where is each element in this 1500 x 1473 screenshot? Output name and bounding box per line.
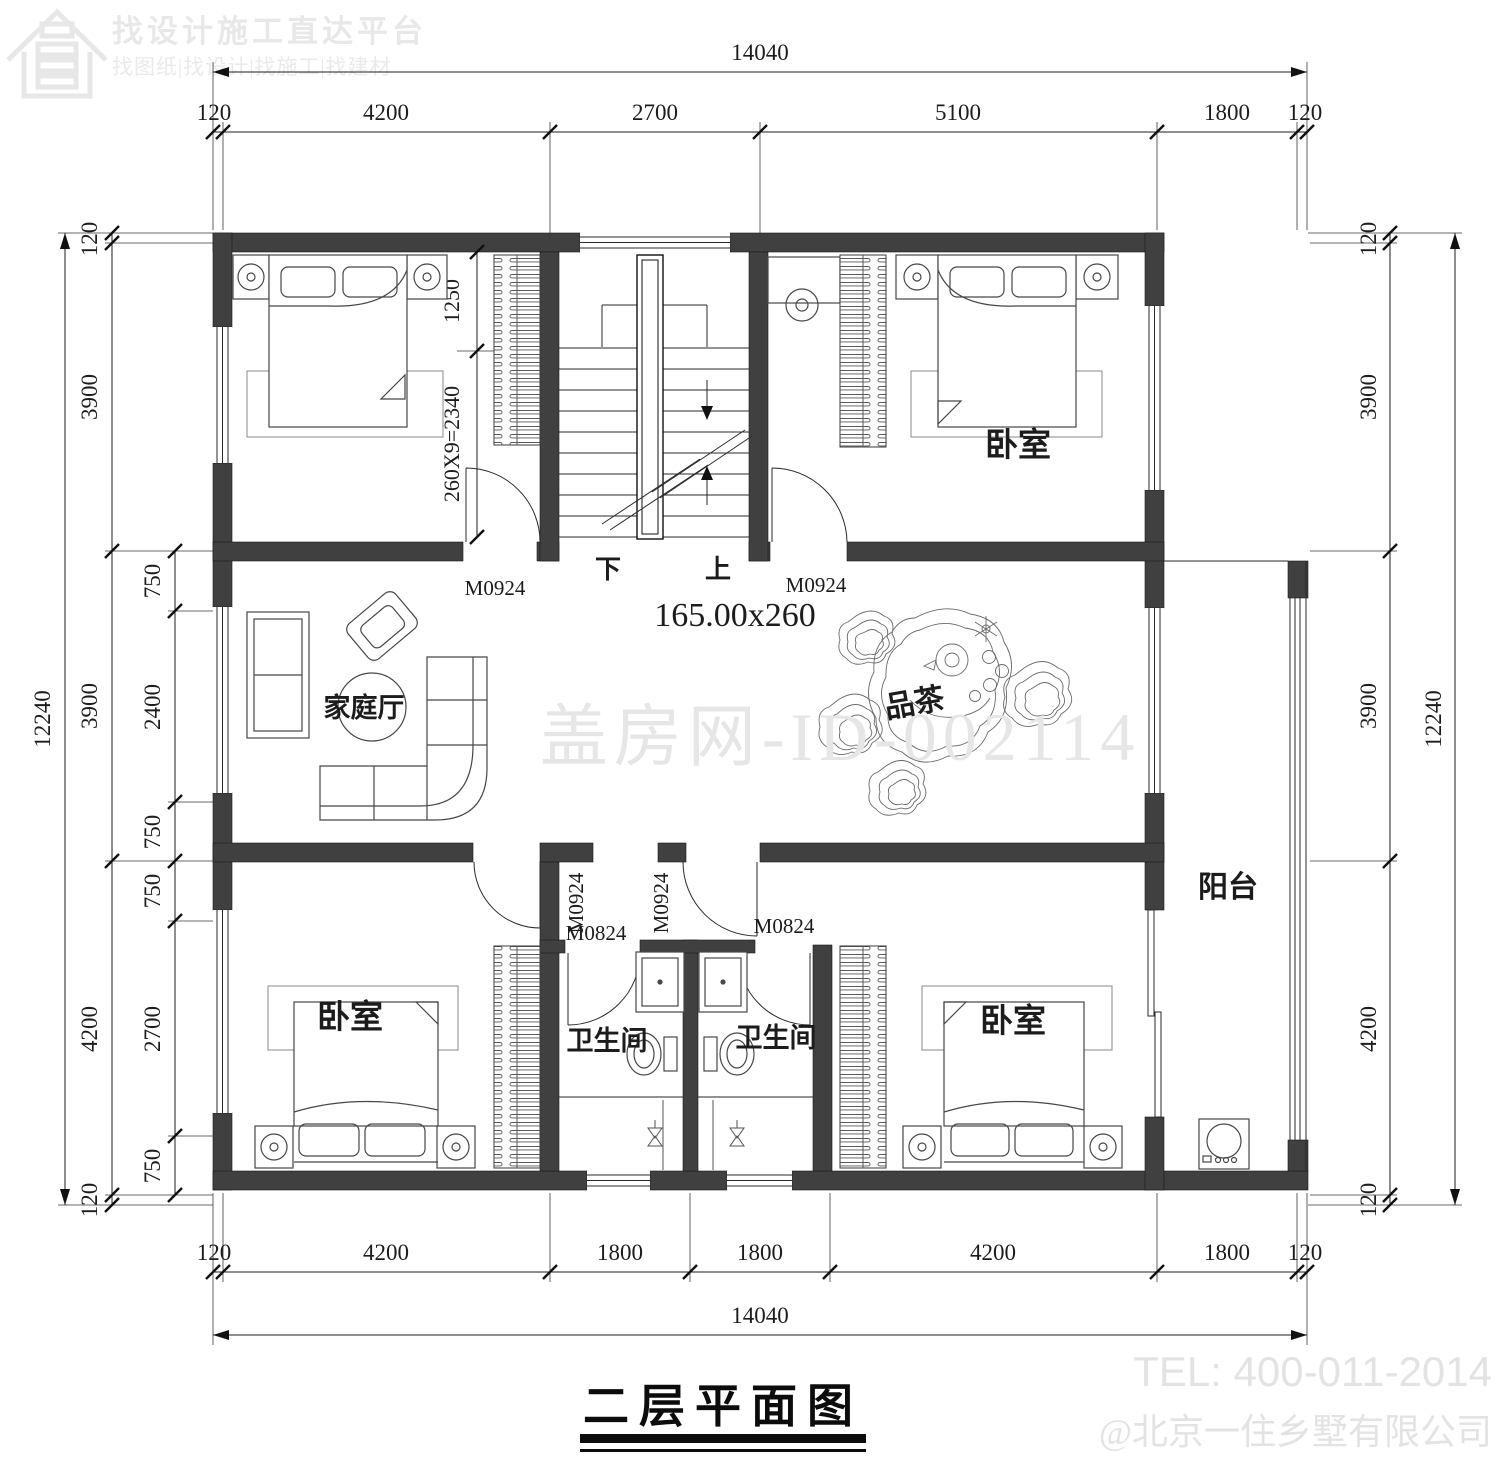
logo-title: 找设计施工直达平台: [112, 14, 427, 49]
dim-right-main-4: 120: [1356, 1183, 1381, 1218]
dim-left-inner-5: 750: [140, 1149, 165, 1184]
door-label-m0824-a: M0824: [566, 921, 627, 945]
door-label-m0924-d: M0924: [649, 872, 673, 933]
dim-bottom-total: 14040: [731, 1303, 789, 1328]
dim-top-2: 2700: [632, 100, 678, 125]
door-label-m0924-a: M0924: [465, 576, 526, 600]
dim-bottom-1: 4200: [363, 1240, 409, 1265]
floor-plan-page: 找设计施工直达平台 找图纸|找设计|找施工|找建材: [0, 0, 1500, 1473]
page-title: 二层平面图: [583, 1381, 863, 1432]
site-logo: 找设计施工直达平台 找图纸|找设计|找施工|找建材: [8, 12, 427, 96]
staircase: 下 上 1250 260X9=2340: [439, 245, 752, 584]
dim-left-main-1: 3900: [77, 374, 102, 420]
dim-bottom-6: 120: [1288, 1240, 1323, 1265]
bedroom-top-left-furniture: [233, 255, 540, 445]
bedroom-bottom-left-furniture: [255, 946, 540, 1168]
room-label-bedroom-top-right: 卧室: [985, 426, 1051, 464]
room-label-bedroom-bottom-right: 卧室: [980, 1002, 1046, 1040]
footer-company: @北京一住乡墅有限公司: [1099, 1412, 1492, 1452]
logo-subtitle: 找图纸|找设计|找施工|找建材: [112, 55, 392, 79]
dim-top-total: 14040: [731, 40, 789, 65]
tea-stool-1: [839, 611, 895, 664]
dim-left-inner-4: 2700: [140, 1006, 165, 1052]
room-label-bath-left: 卫生间: [567, 1026, 648, 1056]
dim-bottom-2: 1800: [597, 1240, 643, 1265]
dim-right-main-3: 4200: [1356, 1006, 1381, 1052]
dim-left-total: 12240: [30, 690, 55, 748]
floor-plan-canvas: 找设计施工直达平台 找图纸|找设计|找施工|找建材: [0, 0, 1500, 1473]
dim-left-main-3: 4200: [77, 1006, 102, 1052]
dim-right-main-0: 120: [1356, 222, 1381, 257]
door-label-m0924-b: M0924: [786, 573, 847, 597]
dim-right-main-2: 3900: [1356, 683, 1381, 729]
dim-bottom-5: 1800: [1204, 1240, 1250, 1265]
dim-bottom-3: 1800: [737, 1240, 783, 1265]
room-label-bath-right: 卫生间: [736, 1023, 817, 1053]
dim-left-main-4: 120: [77, 1183, 102, 1218]
dim-top-3: 5100: [935, 100, 981, 125]
dim-top-4: 1800: [1204, 100, 1250, 125]
dim-left-inner-1: 2400: [140, 684, 165, 730]
footer-tel: TEL: 400-011-2014: [1133, 1348, 1492, 1395]
balcony-items: [1199, 1119, 1249, 1169]
dim-bottom-0: 120: [197, 1240, 232, 1265]
title-underline-thick: [580, 1434, 866, 1443]
bedroom-bottom-right-furniture: [840, 946, 1122, 1168]
house-icon: [8, 12, 106, 96]
stair-down-label: 下: [595, 555, 621, 584]
bedroom-top-right-furniture: [768, 255, 1118, 447]
title-underline-thin: [580, 1449, 866, 1452]
dim-left-inner-2: 750: [140, 815, 165, 850]
dimensions-right: 120 3900 3900 4200 120 12240: [1308, 222, 1462, 1218]
plan-note: 165.00x260: [654, 597, 816, 634]
stair-break-line: [602, 430, 752, 530]
dimensions-left: 12240 120 3900 3900 4200 120 750 2400 75…: [30, 222, 213, 1218]
dim-left-main-0: 120: [77, 222, 102, 257]
dim-left-main-2: 3900: [77, 683, 102, 729]
dim-left-inner-3: 750: [140, 874, 165, 909]
footer: 二层平面图 TEL: 400-011-2014 @北京一住乡墅有限公司: [580, 1348, 1492, 1452]
dim-top-1: 4200: [363, 100, 409, 125]
dim-left-inner-0: 750: [140, 564, 165, 599]
dim-top-0: 120: [197, 100, 232, 125]
room-label-bedroom-bottom-left: 卧室: [317, 998, 383, 1036]
room-label-balcony: 阳台: [1198, 870, 1258, 904]
door-label-m0824-b: M0824: [754, 914, 815, 938]
stair-up-label: 上: [705, 555, 731, 584]
dim-right-main-1: 3900: [1356, 374, 1381, 420]
center-watermark: 盖房网-ID-002114: [540, 699, 1141, 775]
dim-top-5: 120: [1288, 100, 1323, 125]
dim-right-total: 12240: [1421, 690, 1446, 748]
room-label-family-hall: 家庭厅: [324, 692, 405, 723]
dim-bottom-4: 4200: [970, 1240, 1016, 1265]
dimensions-bottom: 120 4200 1800 1800 4200 1800 120 14040: [197, 1193, 1323, 1345]
